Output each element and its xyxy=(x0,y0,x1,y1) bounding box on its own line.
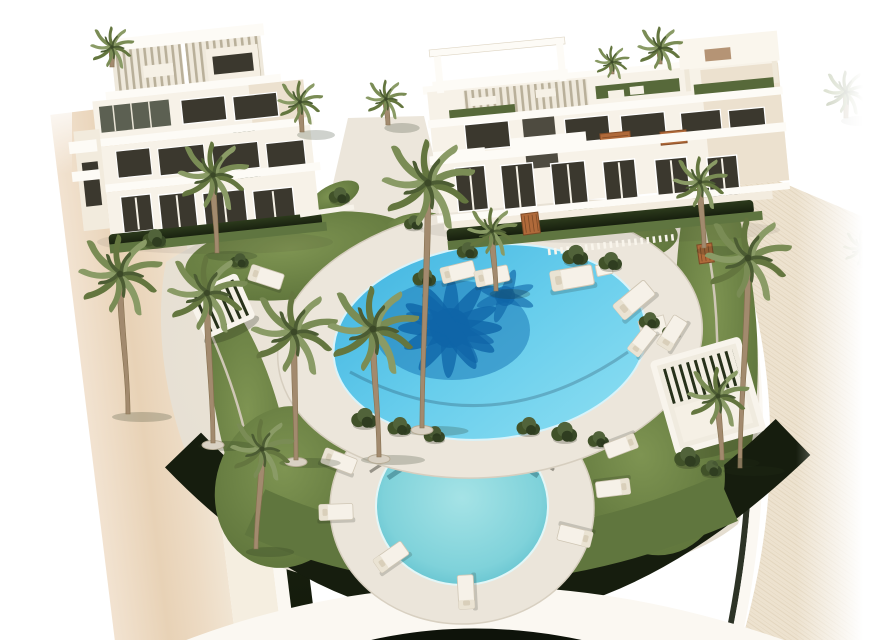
right-edge-fade xyxy=(796,0,880,640)
aerial-render: Aerial 3D architectural rendering of a m… xyxy=(0,0,880,640)
sun-lounger xyxy=(317,503,356,523)
roof-table xyxy=(704,47,731,61)
sun-lounger xyxy=(457,572,478,611)
palm-shadow xyxy=(712,458,759,468)
entry-gate xyxy=(521,212,541,235)
palm-shadow xyxy=(205,251,258,261)
road-top-fade xyxy=(0,90,72,174)
render-canvas: Aerial 3D architectural rendering of a m… xyxy=(0,0,880,640)
palm-shadow xyxy=(112,412,172,422)
palm-shadow xyxy=(246,547,294,557)
